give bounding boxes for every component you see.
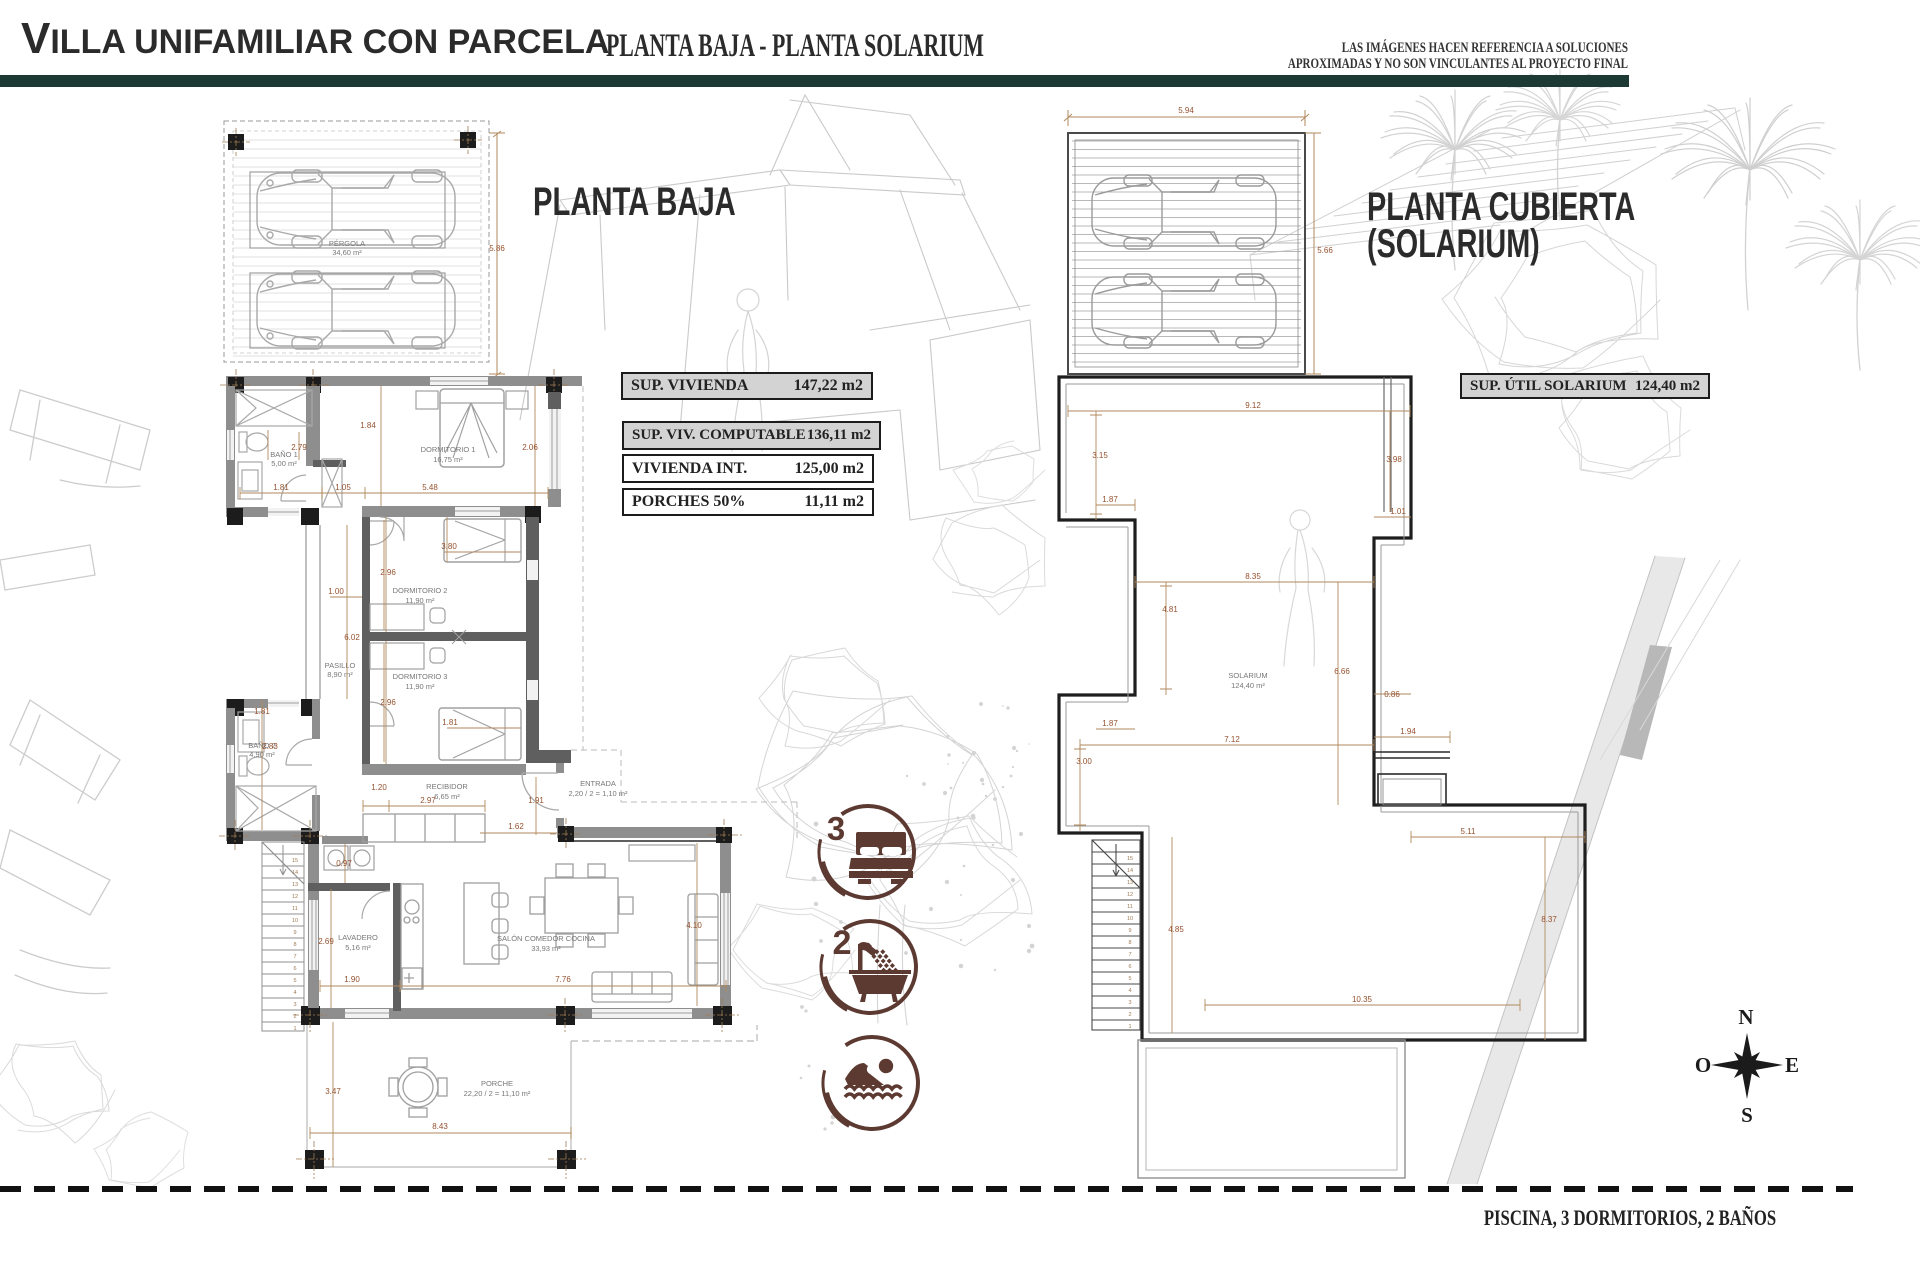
- svg-text:3: 3: [827, 810, 845, 847]
- svg-text:E: E: [1785, 1053, 1799, 1077]
- svg-text:O: O: [1695, 1053, 1711, 1077]
- svg-text:S: S: [1741, 1103, 1753, 1127]
- svg-text:N: N: [1738, 1005, 1753, 1029]
- svg-text:2: 2: [833, 924, 852, 962]
